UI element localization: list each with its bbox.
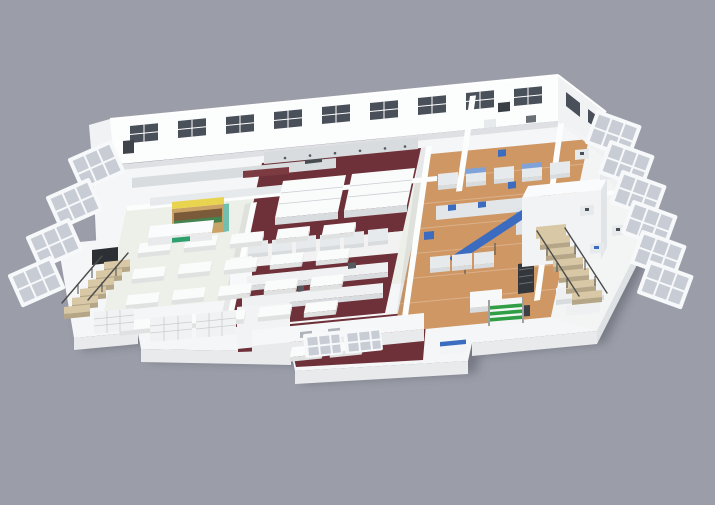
tray-rack <box>518 262 534 294</box>
service-island <box>275 175 346 218</box>
cubby-shelf <box>94 308 134 334</box>
render-canvas <box>0 0 715 505</box>
tray-cart <box>488 297 524 326</box>
window-bay <box>343 326 383 354</box>
service-island <box>344 168 415 211</box>
fridge-block <box>123 140 134 154</box>
window-bay <box>303 330 343 358</box>
floorplan-render <box>0 0 715 505</box>
